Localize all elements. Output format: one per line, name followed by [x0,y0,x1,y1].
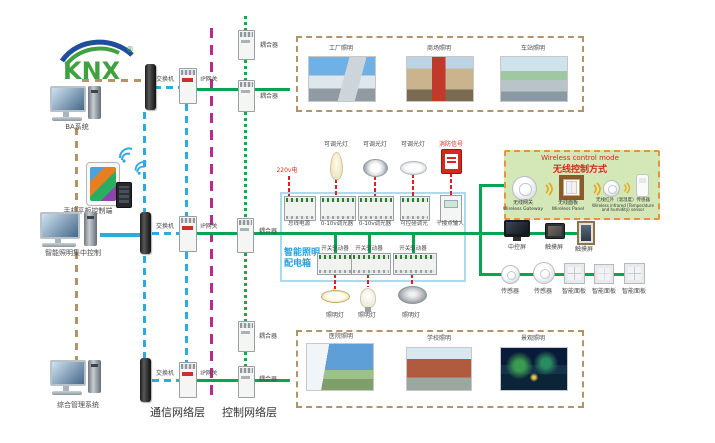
ip-gateway-label: IP网关 [195,223,223,230]
system-diagram-canvas: KNX ® BA系统 手机平板控制端 智能照明集中控制 [0,0,715,443]
pc-monitor [50,86,86,112]
smart-panel-label: 智能面板 [557,288,591,295]
smart-panel-device [564,263,585,284]
gallery-label: 工厂照明 [311,45,371,52]
comm-layer-label: 通信网络层 [150,404,205,420]
fire-alarm-icon [441,149,462,174]
switch3-gateway3-link [152,379,180,382]
wireless-signal-icon [589,182,603,196]
row1-device-label: 可控硅调光 [397,221,431,228]
row2-device-label: 开关驱动器 [348,246,390,253]
smart-panel-device [624,263,645,284]
touch-screen-device [577,221,595,245]
pc-tower [84,212,97,246]
lamp-label: 照明灯 [321,312,349,319]
pc-tower [88,360,101,393]
dry-contact-input-device [440,195,462,222]
ba-system-pc [50,86,104,122]
power-220v-line [288,176,290,197]
dimmable-lamp-label: 可调光灯 [322,141,350,148]
pc-tower [88,86,101,119]
dim-lamp2-line [374,176,376,197]
ctrl-layer-label: 控制网络层 [222,404,277,420]
pc-keyboard [52,117,82,121]
gallery-label: 商场照明 [409,45,469,52]
wireless-panel-device [559,175,584,200]
tablet-device [86,162,120,206]
bus-to-wireless [479,184,507,187]
gallery-label: 车站照明 [503,45,563,52]
lamp1-line [334,274,336,289]
screen-label: 触摸屏 [537,244,571,251]
coupler-label: 耦合器 [255,228,281,235]
gallery-label: 学校照明 [409,335,469,342]
coupler-device [238,321,255,352]
row1-device-label: 干接点输入 [435,221,465,228]
wifi-icon [132,158,150,176]
coupler-label: 耦合器 [256,93,282,100]
coupler-bus-seg-3 [244,112,247,218]
coupler-bus-seg-2 [244,60,247,80]
lighting-control-pc [40,212,100,248]
coupler-bus-seg-5 [244,352,247,366]
pc-keyboard [52,391,82,395]
switch1-gateway1-link [154,86,180,89]
wireless-signal-icon [620,182,632,194]
management-pc [50,360,104,398]
management-pc-label: 综合管理系统 [42,401,114,409]
knx-logo-registered: ® [126,45,134,54]
coupler-bus-seg-4 [244,253,247,321]
gateway-column-link-2 [185,252,188,362]
left-dashed-link-2 [75,252,78,360]
knx-logo-text: KNX [63,57,121,82]
wireless-device-label-en: Wireless Panel [546,207,590,212]
school-photo [406,347,472,391]
dim-lamp1-line [335,179,337,197]
row1-device-label: 0-10v调光器 [355,221,395,228]
pc-monitor [40,212,80,239]
switch-label: 交换机 [152,223,178,230]
switch-column-link-2 [143,256,146,358]
coupler-device [238,30,255,60]
sensor-label: 传感器 [494,288,526,295]
wireless-title-en: Wireless control mode [504,154,656,162]
smart-panel-label: 智能面板 [617,288,651,295]
layer-divider-line [210,28,213,402]
fire-signal-label: 消防信号 [437,141,465,148]
lamp2-line [367,274,369,287]
pc-keyboard [42,243,76,247]
sensor-device [501,265,520,284]
ip-gateway-device [179,68,197,104]
knx-logo: KNX ® [56,34,136,82]
dimmable-lamp-label: 可调光灯 [399,141,427,148]
wireless-device-label-en: Wireless Gateway [499,207,547,212]
ip-gateway-device [179,216,197,252]
power-220v-label: 220v电 [272,167,302,174]
ba-system-label: BA系统 [40,123,114,131]
wireless-device-label-cn: 无线面板 [548,201,588,207]
coupler-device [237,218,254,253]
pc-to-switch2-link [100,233,140,237]
mall-photo [406,56,474,102]
gateway-column-link-1 [185,104,188,216]
ceiling-lamp-icon [400,161,427,175]
wireless-signal-icon [541,182,555,196]
wireless-gateway-device [512,176,537,201]
phone-device [116,182,132,208]
switch-label: 交换机 [152,370,178,377]
row1-device-label: 0-10v调光器 [317,221,357,228]
tablet-screen [90,167,116,201]
candle-lamp-icon [330,152,343,180]
wireless-device-label-en: Wireless infrared (Temperature and humid… [592,204,654,213]
lamp-label: 照明灯 [353,312,381,319]
switch-actuator-device [351,253,391,275]
dimmer-0-10v-device [320,196,356,221]
ip-gateway-label: IP网关 [195,370,223,377]
lighting-control-label: 智能照明集中控制 [28,249,118,257]
row1-device-label: 总线电源 [281,221,317,228]
humidity-sensor-icon [636,174,649,197]
switch-label: 交换机 [152,76,178,83]
coupler-label: 耦合器 [255,376,281,383]
smart-panel-device [594,264,614,284]
ethernet-switch-device [145,64,156,110]
coupler-label: 耦合器 [255,333,281,340]
ethernet-switch-device [140,358,151,402]
switch-actuator-device [393,253,437,275]
landscape-photo [500,347,568,391]
coupler-label: 耦合器 [256,42,282,49]
panel-title-line2: 配电箱 [284,259,311,269]
dimmer-0-10v-device [358,196,394,221]
flat-lamp-icon [321,290,350,303]
left-dashed-link-1 [75,128,78,212]
switch-actuator-device [317,253,355,275]
smart-panel-label: 智能面板 [587,288,621,295]
pc-monitor [50,360,86,386]
ip-gateway-label: IP网关 [195,76,223,83]
highbay-lamp-icon [398,286,427,304]
ip-gateway-device [179,362,197,398]
dim-lamp3-line [412,174,414,197]
bus-power-device [284,196,316,221]
switch2-gateway2-link [152,232,180,235]
screen-label: 触摸屏 [567,246,601,253]
mobile-control-group [84,144,154,206]
wireless-device-label-cn: 无线网关 [503,201,543,207]
downlight-icon [363,159,388,177]
gallery-label: 景观照明 [503,335,563,342]
bus-junction-vertical [479,184,482,276]
sensor-device [533,262,555,284]
central-screen-device [504,220,530,237]
touch-screen-device [545,223,565,239]
wireless-ir-sensor-icon [603,180,620,197]
gallery-label: 医院照明 [311,333,371,340]
hospital-photo [306,343,374,391]
lamp-label: 照明灯 [397,312,425,319]
station-photo [500,56,568,102]
sensor-label: 传感器 [527,288,559,295]
row2-device-label: 开关驱动器 [392,246,434,253]
wireless-title-cn: 无线控制方式 [504,162,656,175]
ethernet-switch-device [140,212,151,254]
coupler-device [238,366,255,398]
factory-photo [308,56,376,102]
dimmable-lamp-label: 可调光灯 [361,141,389,148]
fire-signal-line [450,173,452,197]
scr-dimmer-device [400,196,430,221]
coupler-device [238,80,255,112]
lamp3-line [411,274,413,285]
bulb-lamp-icon [360,288,376,308]
screen-label: 中控屏 [500,244,534,251]
